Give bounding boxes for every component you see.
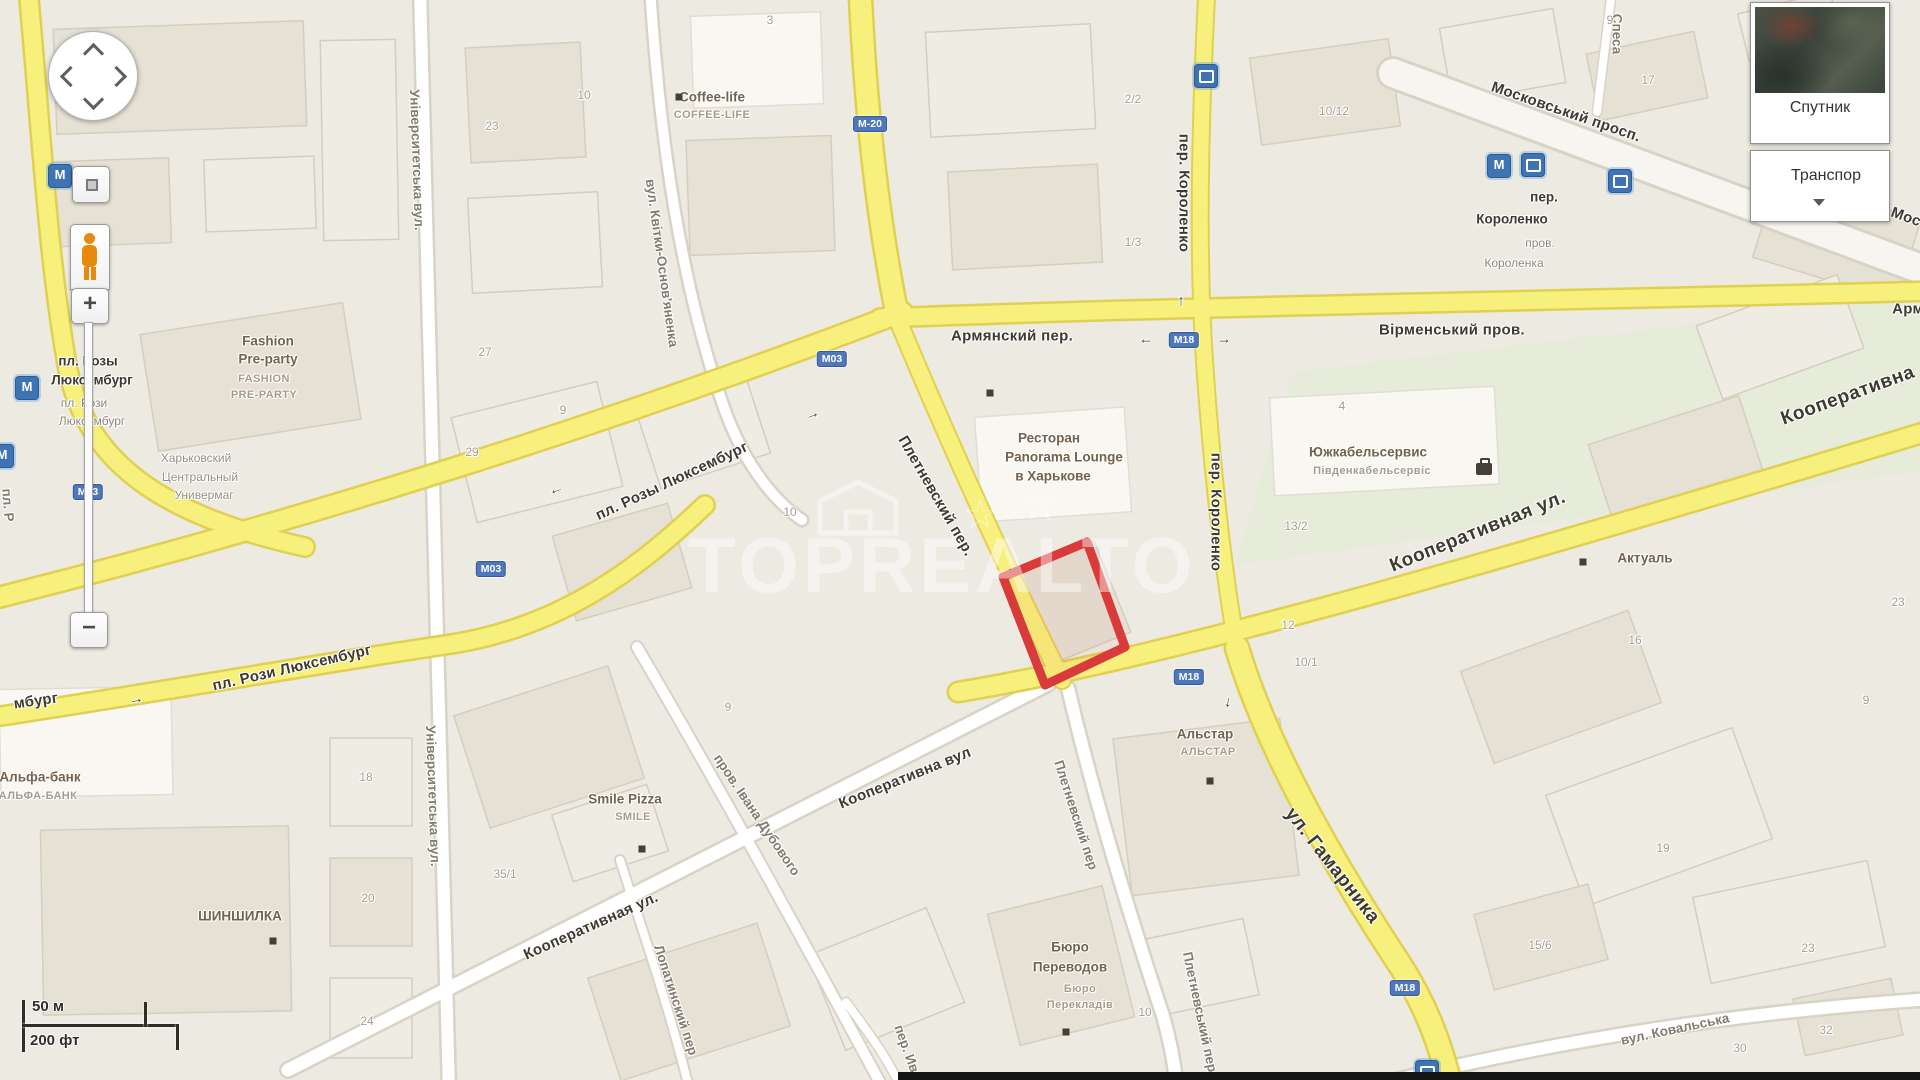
poi-marker-icon xyxy=(987,390,994,397)
map-label-num: 29 xyxy=(465,445,478,459)
map-label-poisub: АЛЬСТАР xyxy=(1180,746,1235,758)
map-label-num: 23 xyxy=(1801,941,1814,955)
map-label-num: 9 xyxy=(560,403,567,417)
map-label-num: 24 xyxy=(360,1014,373,1028)
road-shield: М-20 xyxy=(853,116,887,132)
map-label-num: 18 xyxy=(359,770,372,784)
metro-icon: М xyxy=(1487,154,1511,178)
scale-imperial-label: 200 фт xyxy=(30,1032,79,1049)
map-label-num: 23 xyxy=(1891,595,1904,609)
road-shield: М18 xyxy=(1390,980,1420,996)
map-label-road1: пл. Рози Люксембург xyxy=(211,641,373,694)
poi-marker-icon xyxy=(1063,1029,1070,1036)
map-label-road2: Університетська вул. xyxy=(423,725,443,867)
direction-arrow-icon: ← xyxy=(1139,331,1154,348)
map-label-road1: пл. Розы Люксембург xyxy=(593,438,751,524)
map-label-num: 20 xyxy=(361,891,374,905)
map-label-num: 23 xyxy=(485,119,498,133)
reset-view-button[interactable] xyxy=(72,166,110,203)
bus-icon xyxy=(1608,169,1632,193)
map-label-poi: Альфа-банк xyxy=(0,770,81,785)
map-label-road1: Московський просп. xyxy=(1489,78,1643,145)
pan-down-icon[interactable] xyxy=(83,89,104,110)
map-label-num: 4 xyxy=(1339,399,1346,413)
map-label-num: 10/1 xyxy=(1294,655,1317,669)
map-label-gray: Универмаг xyxy=(174,488,233,502)
pan-control[interactable] xyxy=(48,31,138,121)
map-label-num: 10/12 xyxy=(1319,104,1349,118)
map-label-road1: Арм xyxy=(1892,301,1920,318)
map-label-poi: Smile Pizza xyxy=(588,792,662,807)
metro-icon: М xyxy=(0,444,14,468)
map-label-poi: Pre-party xyxy=(238,352,297,367)
map-label-metrosub: пров. xyxy=(1525,236,1555,250)
pan-up-icon[interactable] xyxy=(83,43,104,64)
map-label-road1: Мос xyxy=(1889,204,1920,230)
map-label-road1: Армянский пер. xyxy=(951,328,1073,345)
map-label-poisub: SMILE xyxy=(615,811,651,823)
map-label-poisub: COFFEE-LIFE xyxy=(674,109,751,121)
map-label-num: 15/6 xyxy=(1528,938,1551,952)
map-label-poi: Fashion xyxy=(242,334,294,349)
scale-metric-label: 50 м xyxy=(32,998,64,1015)
map-label-poi: Актуаль xyxy=(1617,551,1672,566)
map-label-num: 16 xyxy=(1628,633,1641,647)
map-label-road2: вул. Квітки-Основ'яненка xyxy=(643,178,681,348)
road-shield: М03 xyxy=(817,351,847,367)
map-label-poi: Альстар xyxy=(1177,727,1234,742)
direction-arrow-icon: → xyxy=(127,690,144,709)
map-label-road1: пер. Короленко xyxy=(1176,134,1193,253)
briefcase-icon xyxy=(1476,463,1492,475)
map-label-poi: Ресторан xyxy=(1018,431,1080,446)
map-label-num: 13/2 xyxy=(1284,519,1307,533)
map-label-road2: вул. Ковальська xyxy=(1619,1010,1730,1048)
zoom-out-button[interactable]: − xyxy=(70,612,108,648)
map-label-num: 35/1 xyxy=(493,867,516,881)
map-label-num: 9 xyxy=(1863,693,1870,707)
direction-arrow-icon: ↑ xyxy=(1177,293,1185,310)
pegman-icon xyxy=(91,267,96,280)
map-label-poi: Бюро xyxy=(1051,940,1089,955)
map-label-poi: ШИНШИЛКА xyxy=(198,909,282,924)
pegman-icon xyxy=(84,267,89,280)
map-label-num: 9 xyxy=(1607,13,1614,27)
transport-layer-label: Транспор xyxy=(1791,167,1861,185)
map-label-num: 30 xyxy=(1733,1041,1746,1055)
map-label-poisub: FASHION xyxy=(238,373,290,385)
scale-bar xyxy=(22,1024,179,1027)
map-label-num: 3 xyxy=(767,13,774,27)
map-label-poisub: PRE-PARTY xyxy=(231,389,297,401)
poi-marker-icon xyxy=(1207,778,1214,785)
chevron-down-icon xyxy=(1813,199,1825,206)
map-label-road1: Вірменський пров. xyxy=(1379,322,1525,339)
map-label-num: 10 xyxy=(1138,1005,1151,1019)
map-label-num: 19 xyxy=(1656,841,1669,855)
poi-marker-icon xyxy=(676,94,683,101)
map-label-road1big: Кооперативная ул. xyxy=(1387,487,1570,578)
direction-arrow-icon: ← xyxy=(546,479,565,500)
direction-arrow-icon: ↓ xyxy=(1223,693,1233,711)
map-label-road2: пров. Івана Дубового xyxy=(711,751,804,878)
poi-marker-icon xyxy=(1580,559,1587,566)
pegman-icon xyxy=(84,233,95,244)
map-label-poi: в Харькове xyxy=(1015,469,1091,484)
map-label-road1: Кооперативна вул xyxy=(836,744,973,813)
map-label-road1: Кооперативная ул. xyxy=(521,889,661,964)
map-label-num: 27 xyxy=(478,345,491,359)
direction-arrow-icon: → xyxy=(1217,331,1232,348)
map-labels-layer: Армянский пер.Вірменський пров.АрмМосков… xyxy=(0,0,1920,1080)
satellite-layer-label: Спутник xyxy=(1751,99,1889,117)
map-label-road1: Плетневский пер. xyxy=(895,433,978,559)
scale-bar xyxy=(176,1024,179,1050)
map-label-poi: Coffee-life xyxy=(679,90,745,105)
road-shield: М18 xyxy=(1174,669,1204,685)
map-label-road1: мбург xyxy=(13,689,60,712)
map-label-road2: Плетневский пер xyxy=(1051,758,1101,871)
bus-icon xyxy=(1194,64,1218,88)
reset-view-icon xyxy=(86,179,98,191)
map-label-poisub: АЛЬФА-БАНК xyxy=(0,790,77,802)
metro-icon: М xyxy=(48,164,72,188)
pegman-icon xyxy=(82,245,97,267)
transport-layer-button[interactable]: Транспор xyxy=(1750,150,1890,222)
map-label-poi: Panorama Lounge xyxy=(1005,450,1123,465)
map-label-num: 10 xyxy=(783,505,796,519)
bottom-edge-bar xyxy=(898,1072,1920,1080)
map-canvas[interactable]: ☆ ☆ TOPREALTO Армянский пер.Вірменський … xyxy=(0,0,1920,1080)
map-label-num: 9 xyxy=(725,700,732,714)
map-label-num: 32 xyxy=(1819,1023,1832,1037)
road-shield: М03 xyxy=(476,561,506,577)
map-label-road1: пер. Короленко xyxy=(1208,453,1225,572)
map-label-road2: Лопатинский пер xyxy=(651,943,701,1057)
satellite-layer-button[interactable]: Спутник xyxy=(1750,2,1890,144)
satellite-thumbnail xyxy=(1755,7,1885,93)
map-label-poisub: Південкабельсервіс xyxy=(1313,465,1431,477)
map-label-poi: Южкабельсервис xyxy=(1309,445,1427,460)
pan-right-icon[interactable] xyxy=(106,66,127,87)
poi-marker-icon xyxy=(270,938,277,945)
poi-marker-icon xyxy=(639,846,646,853)
map-label-poisub: Бюро xyxy=(1064,983,1096,995)
map-label-poisub: Перекладів xyxy=(1047,999,1113,1011)
scale-bar xyxy=(144,1002,147,1027)
map-label-gray: Центральный xyxy=(162,470,238,484)
map-label-road1big: ул. Гамарника xyxy=(1280,804,1384,929)
direction-arrow-icon: → xyxy=(802,403,822,424)
map-label-road2: пл. Р xyxy=(0,488,17,522)
map-scale: 50 м 200 фт xyxy=(22,996,184,1056)
map-label-metrosub: Короленка xyxy=(1484,256,1543,270)
pegman-control[interactable] xyxy=(70,224,110,290)
map-label-num: 2/2 xyxy=(1125,92,1142,106)
map-label-road1big: Кооперативна xyxy=(1778,362,1918,431)
road-shield: М18 xyxy=(1169,332,1199,348)
map-label-gray: Харьковский xyxy=(161,451,232,465)
map-label-num: 1/3 xyxy=(1125,235,1142,249)
map-label-num: 10 xyxy=(577,88,590,102)
map-label-num: 17 xyxy=(1641,73,1654,87)
bus-icon xyxy=(1521,153,1545,177)
map-label-num: 12 xyxy=(1281,618,1294,632)
zoom-slider-track[interactable] xyxy=(84,322,93,616)
zoom-in-button[interactable]: + xyxy=(71,288,109,324)
map-label-road2: Університетська вул. xyxy=(407,89,427,231)
map-label-road2: Плетневський пер xyxy=(1180,951,1220,1074)
metro-icon: М xyxy=(15,376,39,400)
pan-left-icon[interactable] xyxy=(60,66,81,87)
map-label-metro: Короленко xyxy=(1476,212,1548,227)
map-label-metro: пер. xyxy=(1530,190,1558,205)
map-label-poi: Переводов xyxy=(1033,960,1107,975)
